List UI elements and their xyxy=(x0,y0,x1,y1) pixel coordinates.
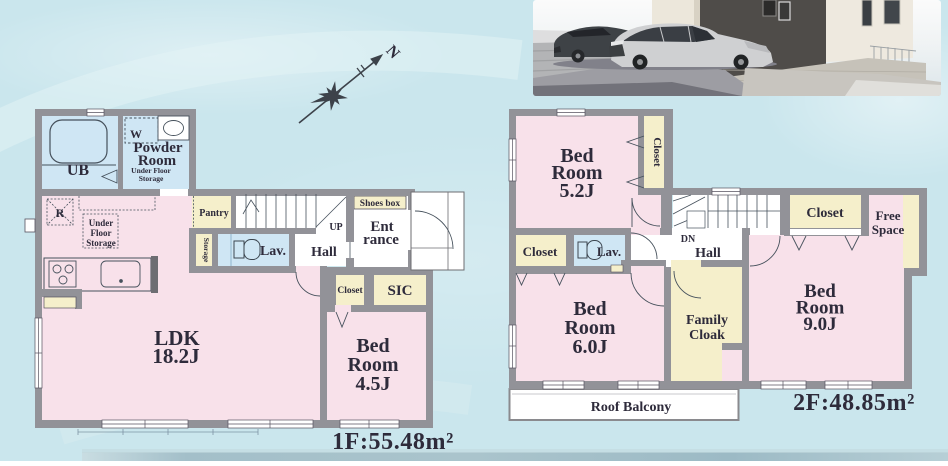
svg-text:Family: Family xyxy=(686,313,728,328)
svg-text:Cloak: Cloak xyxy=(689,328,725,343)
svg-text:Storage: Storage xyxy=(139,174,164,183)
svg-text:Under: Under xyxy=(89,218,114,228)
svg-text:Lav.: Lav. xyxy=(597,244,621,259)
svg-text:R: R xyxy=(56,206,65,220)
svg-text:Space: Space xyxy=(872,222,905,237)
svg-text:Pantry: Pantry xyxy=(199,208,228,219)
svg-text:W: W xyxy=(130,127,142,141)
svg-text:Roof Balcony: Roof Balcony xyxy=(591,400,672,415)
svg-text:Closet: Closet xyxy=(523,244,558,259)
svg-text:SIC: SIC xyxy=(387,283,412,299)
svg-text:2F:48.85m²: 2F:48.85m² xyxy=(793,390,915,416)
svg-text:Hall: Hall xyxy=(695,246,721,261)
svg-text:Closet: Closet xyxy=(806,206,844,221)
svg-text:Floor: Floor xyxy=(91,228,112,238)
svg-text:Free: Free xyxy=(875,208,900,223)
svg-text:9.0J: 9.0J xyxy=(803,314,836,335)
svg-text:rance: rance xyxy=(363,232,399,248)
svg-text:Lav.: Lav. xyxy=(260,244,286,259)
svg-text:Closet: Closet xyxy=(337,286,363,296)
svg-text:Storage: Storage xyxy=(86,238,116,248)
svg-text:DN: DN xyxy=(681,234,696,245)
svg-text:UB: UB xyxy=(67,162,90,179)
svg-text:Storage: Storage xyxy=(202,238,211,263)
svg-text:UP: UP xyxy=(329,222,342,233)
svg-text:4.5J: 4.5J xyxy=(356,373,391,395)
svg-text:1F:55.48m²: 1F:55.48m² xyxy=(332,429,454,455)
svg-text:5.2J: 5.2J xyxy=(560,180,595,202)
svg-text:Shoes box: Shoes box xyxy=(360,199,401,209)
svg-text:18.2J: 18.2J xyxy=(152,344,199,368)
svg-text:Hall: Hall xyxy=(311,245,337,260)
svg-text:Closet: Closet xyxy=(651,137,663,167)
svg-text:6.0J: 6.0J xyxy=(573,336,608,358)
